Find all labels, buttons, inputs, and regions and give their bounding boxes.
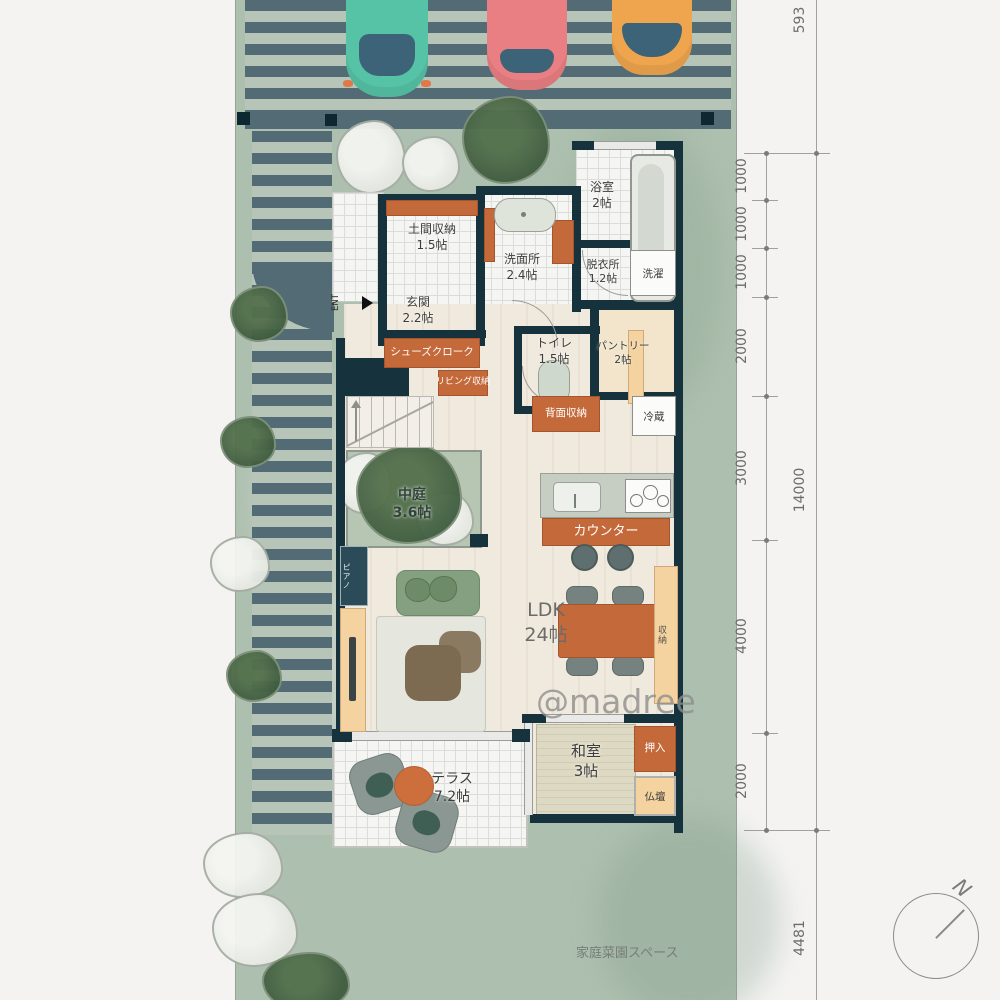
coffee-table [405,645,461,701]
room-label-toire: トイレ1.5帖 [522,336,586,367]
dimension-dot [764,731,769,736]
rug [376,616,486,732]
tv-board [340,608,366,732]
window [594,141,656,150]
wall [476,186,580,195]
shoes-cloak-label: シューズクローク [385,339,479,367]
watermark: @madree [536,682,696,721]
dining-chair [612,586,644,606]
room-label-genkan: 玄関2.2帖 [380,295,456,326]
dimension-dot [764,295,769,300]
doma-shelf [386,200,478,216]
dimension-dot [764,538,769,543]
car-mirror [421,80,431,87]
window [352,731,512,741]
living-storage-label: リビング収納 [439,371,487,395]
tree [220,416,276,468]
basin-drain [521,212,526,217]
back-storage-cabinet: 背面収納 [532,396,600,432]
sentaku-label: 洗濯 [631,251,675,295]
burner [657,495,669,507]
dining-chair [566,656,598,676]
sofa-cushion [429,576,457,602]
piano-label: ピアノ [341,547,352,605]
entrance-arrow-icon [362,296,373,310]
dim-label: 1000 [734,242,750,302]
tree [226,650,282,702]
wall [576,240,634,248]
kitchen-counter [540,473,674,518]
car-mirror [343,80,353,87]
dim-label: 14000 [792,460,808,520]
fridge-label: 冷蔵 [633,397,675,435]
tree [210,536,270,592]
room-label-doma: 土間収納1.5帖 [392,222,472,253]
driveway-stripes [252,131,332,835]
dimension-dot [764,394,769,399]
room-label-senmenjo: 洗面所2.4帖 [482,252,562,283]
stool [571,544,598,571]
back-storage-label: 背面収納 [533,397,599,431]
sofa-cushion [405,578,431,602]
watercolor-blot [600,820,780,1000]
dim-label: 593 [792,0,808,50]
car-windshield [500,49,554,73]
car-red [487,0,567,90]
room-label-datsuijo: 脱衣所1.2帖 [572,258,634,287]
dimension-outer-line [816,0,817,1000]
tree [203,832,283,898]
washing-machine: 洗濯 [630,250,676,296]
burner [643,485,658,500]
chair-cushion [362,770,396,801]
sink-faucet [574,494,576,508]
washbasin [494,198,556,232]
kitchen-sink [553,482,601,512]
wall [512,729,530,742]
stool [607,544,634,571]
tree [402,136,460,192]
dim-label: 4481 [792,908,808,968]
room-label-nakaniwa: 中庭3.6帖 [372,486,452,522]
wall [470,534,488,547]
dimension-dot [814,828,819,833]
butsudan-label: 仏壇 [636,778,674,814]
piano: ピアノ [340,546,368,606]
gate-post [701,112,714,125]
shoes-cloak-cabinet: シューズクローク [384,338,480,368]
sofa [396,570,480,616]
garden-label: 家庭菜園スペース [576,942,736,961]
dim-label: 4000 [734,606,750,666]
butsudan-cabinet: 仏壇 [634,776,676,816]
room-label-terrace: テラス7.2帖 [412,770,492,806]
dimension-dot [764,198,769,203]
living-storage-cabinet: リビング収納 [438,370,488,396]
car-orange [612,0,692,75]
room-label-yokushitsu: 浴室2帖 [572,180,632,211]
counter-cabinet: カウンター [542,518,670,546]
dim-label: 2000 [734,751,750,811]
dimension-dot [764,246,769,251]
dim-label: 2000 [734,316,750,376]
oshiire-closet: 押入 [634,726,676,772]
wall [378,330,486,338]
stairs [346,396,434,448]
entrance-mark-label: ENT [331,295,361,311]
stairs-arrow-head [351,400,361,408]
car-windshield [359,34,415,76]
dimension-chain-line [766,153,767,830]
tv [349,637,356,701]
tree [230,286,288,342]
tree [336,120,406,194]
room-label-pantry: パントリー2帖 [592,340,654,367]
car-teal [346,0,428,97]
gate-post [237,112,250,125]
oshiire-label: 押入 [635,727,675,771]
wall [590,302,682,310]
counter-label: カウンター [543,519,669,545]
stove [625,479,671,513]
tree [462,96,550,184]
car-windshield [622,23,682,57]
room-label-washitsu: 和室3帖 [548,742,624,781]
dining-chair [612,656,644,676]
dim-label: 3000 [734,438,750,498]
dimension-dot [764,828,769,833]
dimension-dot [814,151,819,156]
gate-post [325,114,337,126]
chair-cushion [410,808,444,839]
dimension-dot [764,151,769,156]
burner [630,494,643,507]
entrance-porch-floor [332,192,384,302]
floor-plan-canvas: ENT シューズクローク リビング収納 洗濯 背面収納 冷蔵 [0,0,1000,1000]
stairs-arrow [355,405,357,441]
room-label-ldk: LDK24帖 [508,598,584,647]
fridge: 冷蔵 [632,396,676,436]
